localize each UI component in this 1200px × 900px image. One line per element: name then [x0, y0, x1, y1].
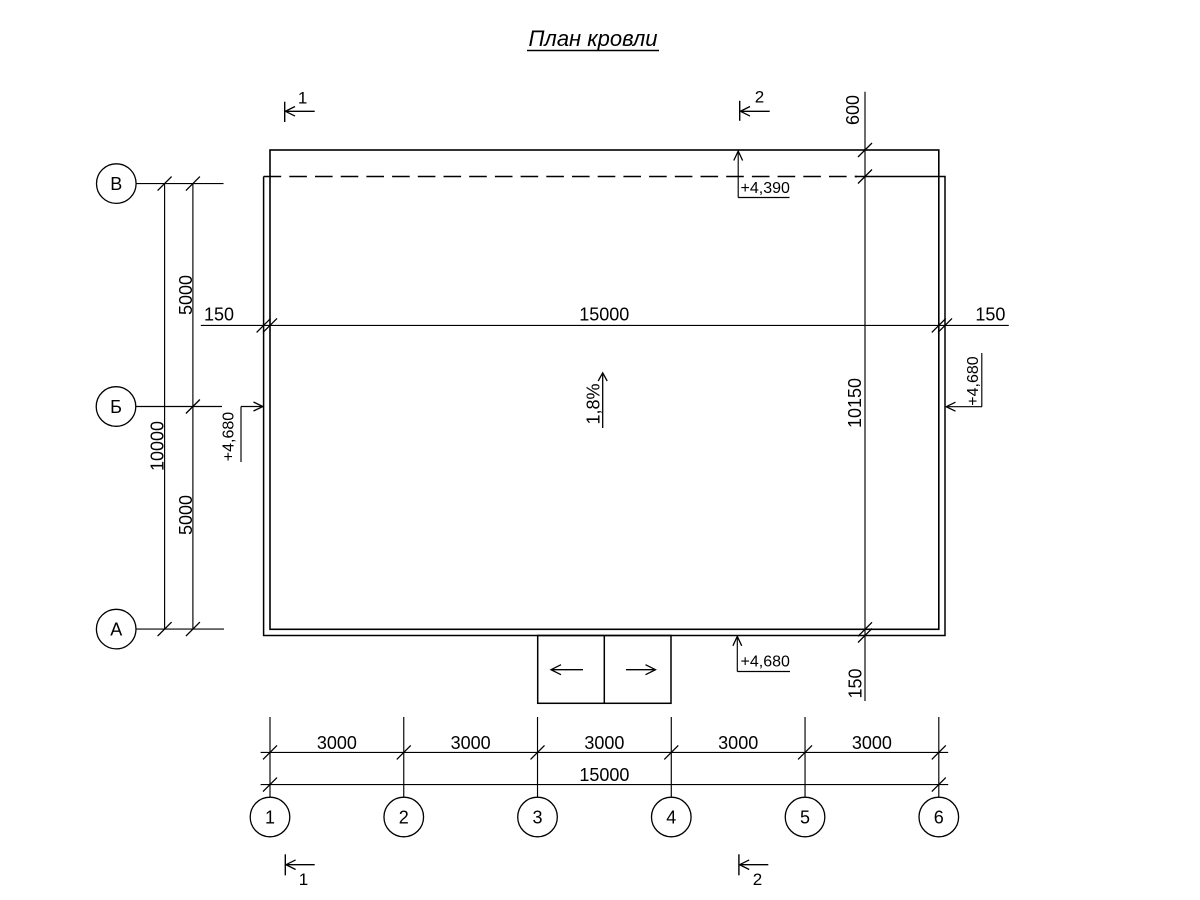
- svg-text:3000: 3000: [451, 733, 491, 753]
- svg-text:150: 150: [846, 668, 866, 698]
- svg-text:3: 3: [533, 807, 543, 827]
- svg-text:4: 4: [666, 807, 676, 827]
- svg-text:1: 1: [299, 870, 308, 889]
- svg-text:15000: 15000: [579, 765, 629, 785]
- svg-text:В: В: [110, 174, 122, 194]
- svg-text:3000: 3000: [317, 733, 357, 753]
- svg-text:+4,680: +4,680: [221, 412, 238, 461]
- svg-text:План кровли: План кровли: [528, 26, 657, 51]
- svg-text:2: 2: [399, 807, 409, 827]
- svg-text:2: 2: [753, 870, 762, 889]
- svg-text:600: 600: [843, 95, 863, 125]
- svg-text:1: 1: [298, 89, 307, 108]
- svg-text:5000: 5000: [176, 275, 196, 315]
- svg-text:10000: 10000: [148, 421, 168, 471]
- svg-text:5000: 5000: [176, 495, 196, 535]
- svg-text:3000: 3000: [584, 733, 624, 753]
- svg-text:10150: 10150: [845, 378, 865, 428]
- svg-text:5: 5: [800, 807, 810, 827]
- svg-text:Б: Б: [110, 397, 122, 417]
- svg-text:3000: 3000: [852, 733, 892, 753]
- svg-text:+4,680: +4,680: [741, 654, 790, 671]
- svg-text:+4,390: +4,390: [741, 180, 790, 197]
- svg-text:3000: 3000: [718, 733, 758, 753]
- svg-text:2: 2: [755, 88, 764, 107]
- svg-text:1,8%: 1,8%: [584, 383, 604, 424]
- svg-text:+4,680: +4,680: [965, 356, 982, 405]
- svg-text:150: 150: [975, 305, 1005, 325]
- svg-text:150: 150: [204, 305, 234, 325]
- svg-text:6: 6: [934, 807, 944, 827]
- svg-text:15000: 15000: [579, 305, 629, 325]
- svg-text:1: 1: [265, 807, 275, 827]
- svg-text:А: А: [110, 620, 122, 640]
